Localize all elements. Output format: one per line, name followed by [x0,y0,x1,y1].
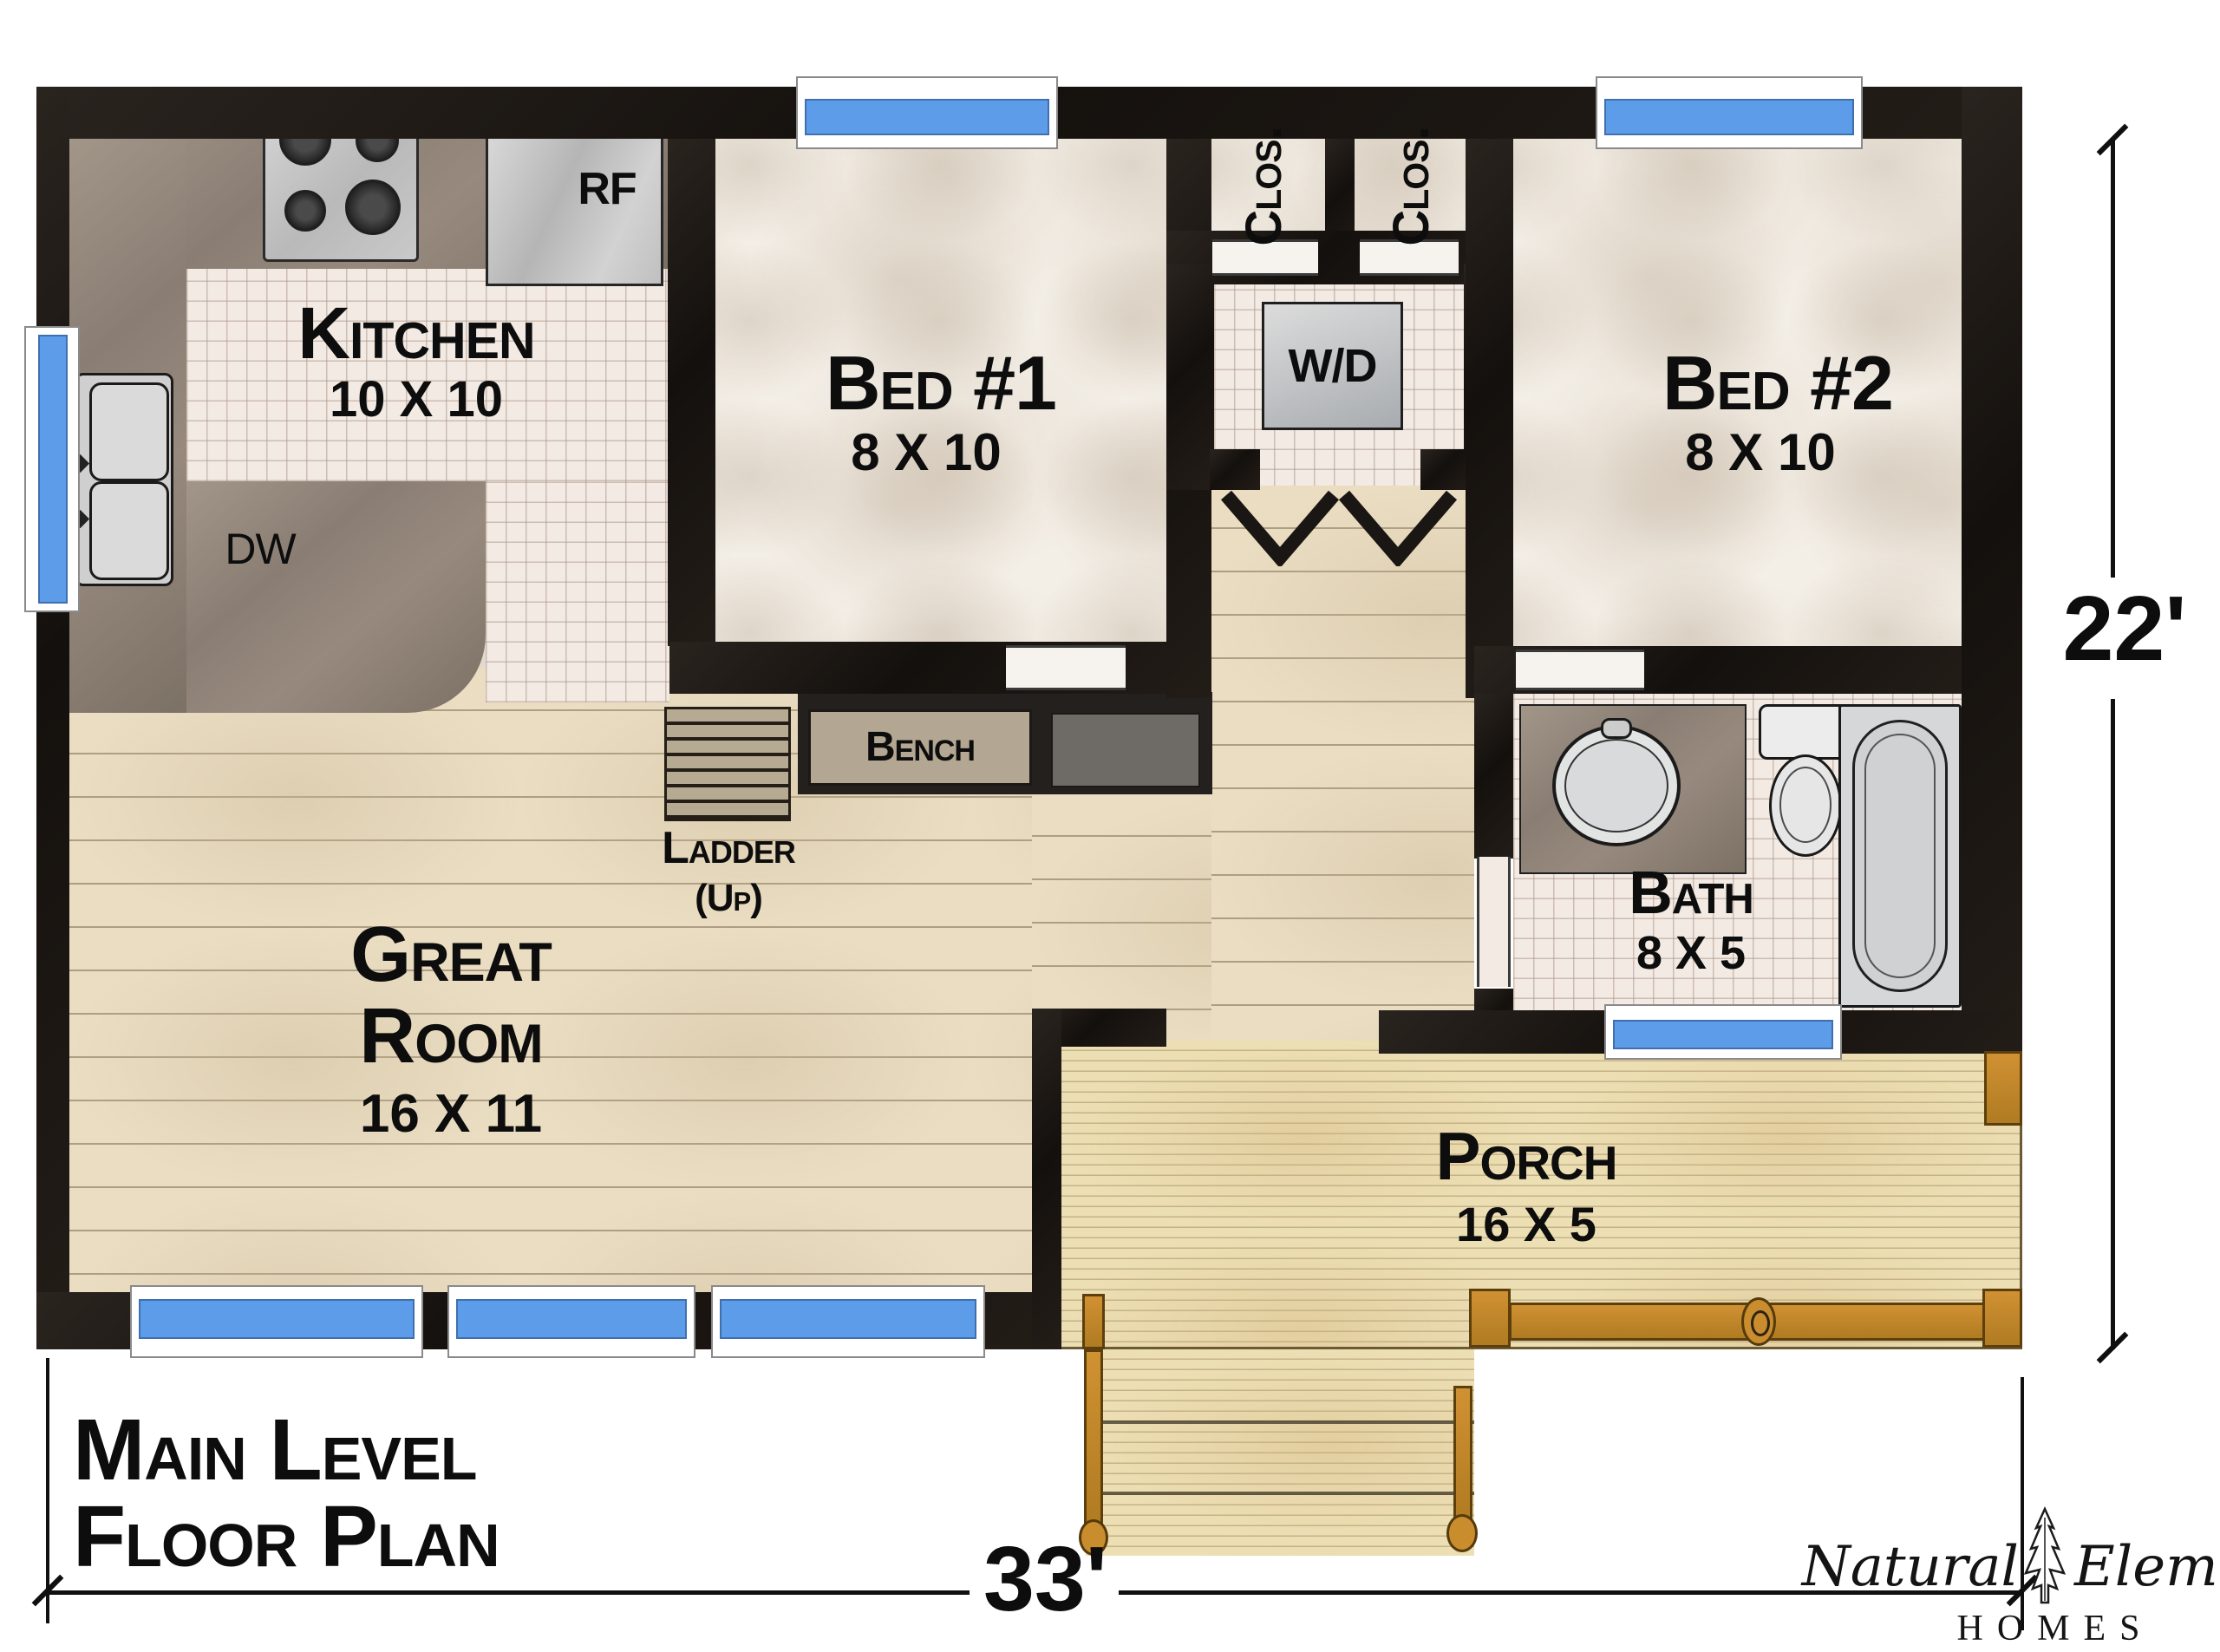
window-bed1 [805,99,1049,135]
wall-bed1-bottom [669,642,1210,694]
kitchen-label: Kitchen [199,297,633,369]
bed2-size: 8 X 10 [1544,427,1977,479]
bath-faucet-icon [1601,718,1632,739]
ladder [664,707,791,821]
porch-post-steps [1082,1294,1105,1349]
pine-tree-icon [2021,1505,2069,1618]
window-great2 [456,1299,687,1339]
dishwasher-label: DW [208,527,312,571]
porch-size: 16 X 5 [1309,1200,1743,1249]
step-edge-2 [1086,1492,1474,1495]
ladder-up-label: (Up) [637,879,819,917]
great-room-label-1: Great [199,916,702,994]
dim-height-line-upper [2111,140,2115,578]
floor-plan-sheet: RF W/D Bench [0,0,2220,1652]
bathtub-basin [1864,734,1936,978]
wall-bed2-left [1466,139,1513,698]
wall-laundry-left [1166,264,1214,490]
kitchen-size: 10 X 10 [199,375,633,425]
logo-word-natural: Natural [1769,1535,2019,1599]
window-bath [1613,1020,1833,1049]
bath-label: Bath [1522,862,1860,923]
wall-right [1962,87,2022,1054]
washer-dryer: W/D [1262,302,1403,430]
bath-size: 8 X 5 [1531,930,1851,976]
dim-height-label: 22' [2047,583,2203,675]
kitchen-sink [75,373,173,586]
sheet-title-line1: Main Level [73,1407,680,1493]
refrigerator-label: RF [559,167,655,212]
kitchen-tile-b [486,481,669,702]
steps-post-right-foot [1446,1514,1478,1552]
railing-medallion-icon [1741,1297,1776,1346]
sink-basin [89,382,169,481]
logo-word-element: Element [2074,1535,2220,1599]
washer-dryer-label: W/D [1289,343,1377,389]
wall-left [36,87,69,1349]
bed1-door-opening [1006,645,1126,690]
window-great1 [139,1299,415,1339]
toilet-seat-line [1779,767,1831,843]
bed1-label: Bed #1 [720,345,1162,421]
bed2-door-opening [1516,650,1644,690]
great-room-size: 16 X 11 [199,1087,702,1141]
dim-height-line-lower [2111,699,2115,1349]
porch-post-top-right [1984,1051,2022,1126]
wall-porch-left [1032,1009,1061,1349]
bath-door-opening [1477,857,1511,987]
bath-sink-inner [1564,739,1668,833]
toilet-tank [1759,704,1849,760]
bifold-doors-icon [1214,490,1464,566]
porch-steps [1086,1349,1474,1556]
bed2-label: Bed #2 [1557,345,1999,421]
bench-cabinet [1051,713,1200,787]
wall-laundry-stub-left [1210,449,1260,490]
porch-label: Porch [1301,1122,1752,1190]
kitchen-counter-island [186,481,486,713]
closet2-label: Clos. [1368,78,1455,295]
wall-laundry-stub-right [1420,449,1470,490]
sheet-title-line2: Floor Plan [73,1493,680,1580]
burner-icon [345,180,401,235]
porch-post-rail-right [1982,1289,2022,1348]
hall-floor [1211,486,1474,1054]
dim-width-line-left [48,1590,970,1595]
closet1-label: Clos. [1221,78,1308,295]
window-great3 [720,1299,976,1339]
bench: Bench [808,709,1032,786]
dim-width-ext-left [46,1358,49,1623]
sink-basin [89,481,169,580]
step-edge-1 [1086,1420,1474,1424]
porch-post-rail-left [1469,1289,1511,1348]
bed1-size: 8 X 10 [709,427,1143,479]
steps-post-left [1084,1349,1103,1528]
bench-label: Bench [865,727,975,768]
wall-bath-left-upper [1474,694,1513,859]
steps-post-right [1453,1386,1472,1523]
dim-width-label: 33' [970,1533,1121,1625]
ladder-label: Ladder [607,826,850,871]
window-kitchen [38,335,68,604]
burner-icon [284,190,326,232]
great-room-label-2: Room [199,997,702,1075]
window-bed2 [1604,99,1854,135]
brand-logo: Natural Element HOMES [1769,1505,2220,1644]
logo-word-homes: HOMES [1899,1608,2211,1649]
wall-kitchen-bed1 [668,139,715,646]
